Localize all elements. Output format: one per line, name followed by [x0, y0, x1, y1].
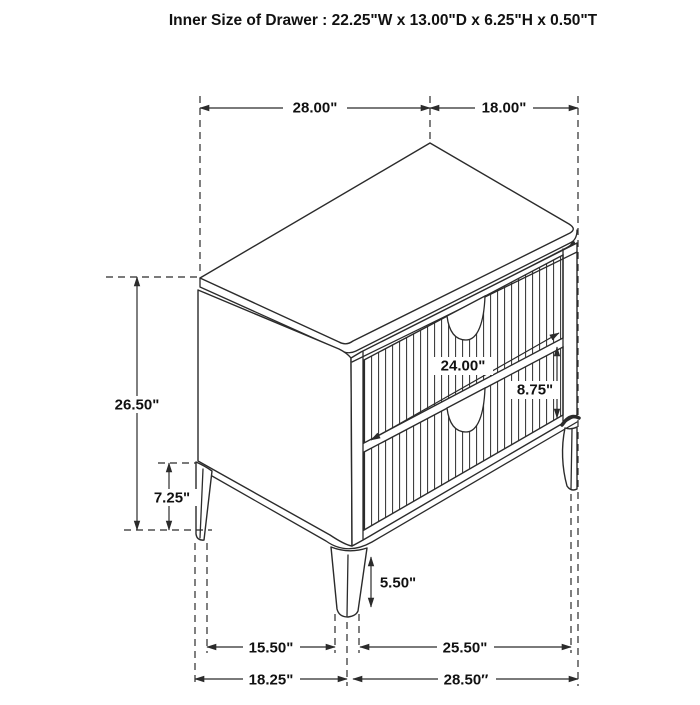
dim-label-top-depth: 18.00"	[482, 100, 527, 117]
dim-label-overall-height: 26.50"	[115, 397, 160, 414]
dim-label-front-leg-height: 5.50"	[380, 575, 416, 592]
dim-label-top-width: 28.00"	[293, 100, 338, 117]
dim-label-drawer-height: 8.75"	[517, 382, 553, 399]
dim-label-leg-span-side: 15.50"	[249, 640, 294, 657]
nightstand-dimension-drawing: Inner Size of Drawer : 22.25"W x 13.00"D…	[0, 0, 700, 700]
drawing-title: Inner Size of Drawer : 22.25"W x 13.00"D…	[169, 12, 598, 29]
dim-label-drawer-width: 24.00"	[441, 358, 486, 375]
dimension-diagram: Inner Size of Drawer : 22.25"W x 13.00"D…	[0, 0, 700, 700]
dim-label-base-depth: 18.25"	[249, 672, 294, 689]
dim-label-leg-span-front: 25.50"	[443, 640, 488, 657]
dim-label-base-width: 28.50″	[444, 672, 489, 689]
dim-label-back-leg-height: 7.25"	[154, 490, 190, 507]
